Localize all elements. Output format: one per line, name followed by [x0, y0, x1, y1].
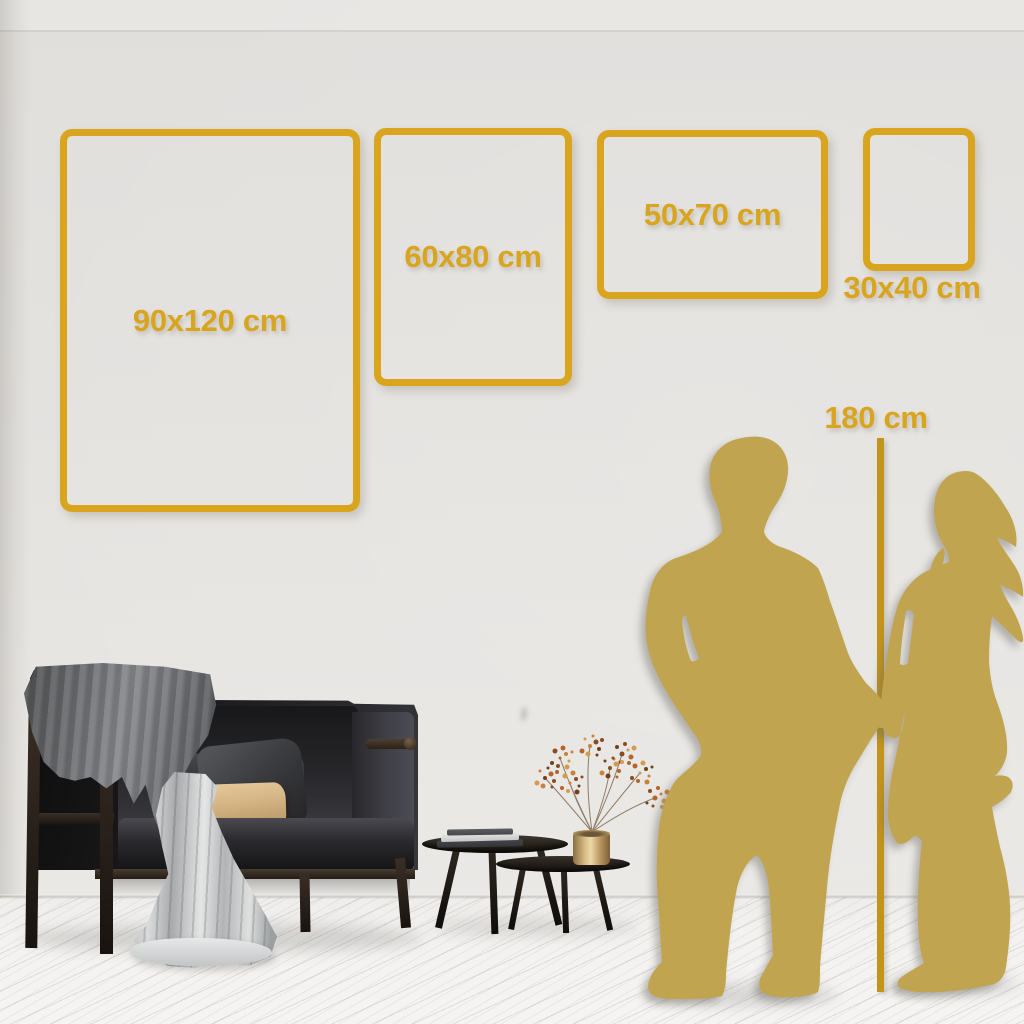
brass-vase — [573, 833, 610, 865]
ceiling — [0, 0, 1024, 30]
book — [447, 828, 513, 835]
size-frame-50x70: 50x70 cm — [597, 130, 828, 299]
couple-silhouette — [620, 425, 1024, 1015]
wall-corner-shading — [0, 0, 30, 900]
size-label-60x80: 60x80 cm — [404, 239, 541, 275]
man-silhouette — [646, 437, 886, 999]
sofa-front-rail — [95, 869, 415, 879]
size-frame-60x80: 60x80 cm — [374, 128, 572, 386]
sofa-leg — [299, 872, 310, 932]
size-label-30x40: 30x40 cm — [826, 270, 998, 306]
blanket-floor-pile — [130, 938, 272, 966]
wall-smudge-shadow — [518, 703, 531, 724]
armrest-knob — [404, 737, 417, 750]
woman-silhouette — [881, 471, 1024, 992]
clasped-hands — [871, 700, 891, 728]
poster-size-guide-scene: 90x120 cm 60x80 cm 50x70 cm 30x40 cm 180… — [0, 0, 1024, 1024]
table-leg — [561, 870, 569, 933]
size-label-50x70: 50x70 cm — [644, 197, 781, 233]
size-frame-90x120: 90x120 cm — [60, 129, 360, 512]
size-frame-30x40 — [863, 128, 975, 271]
ceiling-wall-line — [0, 30, 1024, 32]
size-label-90x120: 90x120 cm — [133, 303, 287, 339]
